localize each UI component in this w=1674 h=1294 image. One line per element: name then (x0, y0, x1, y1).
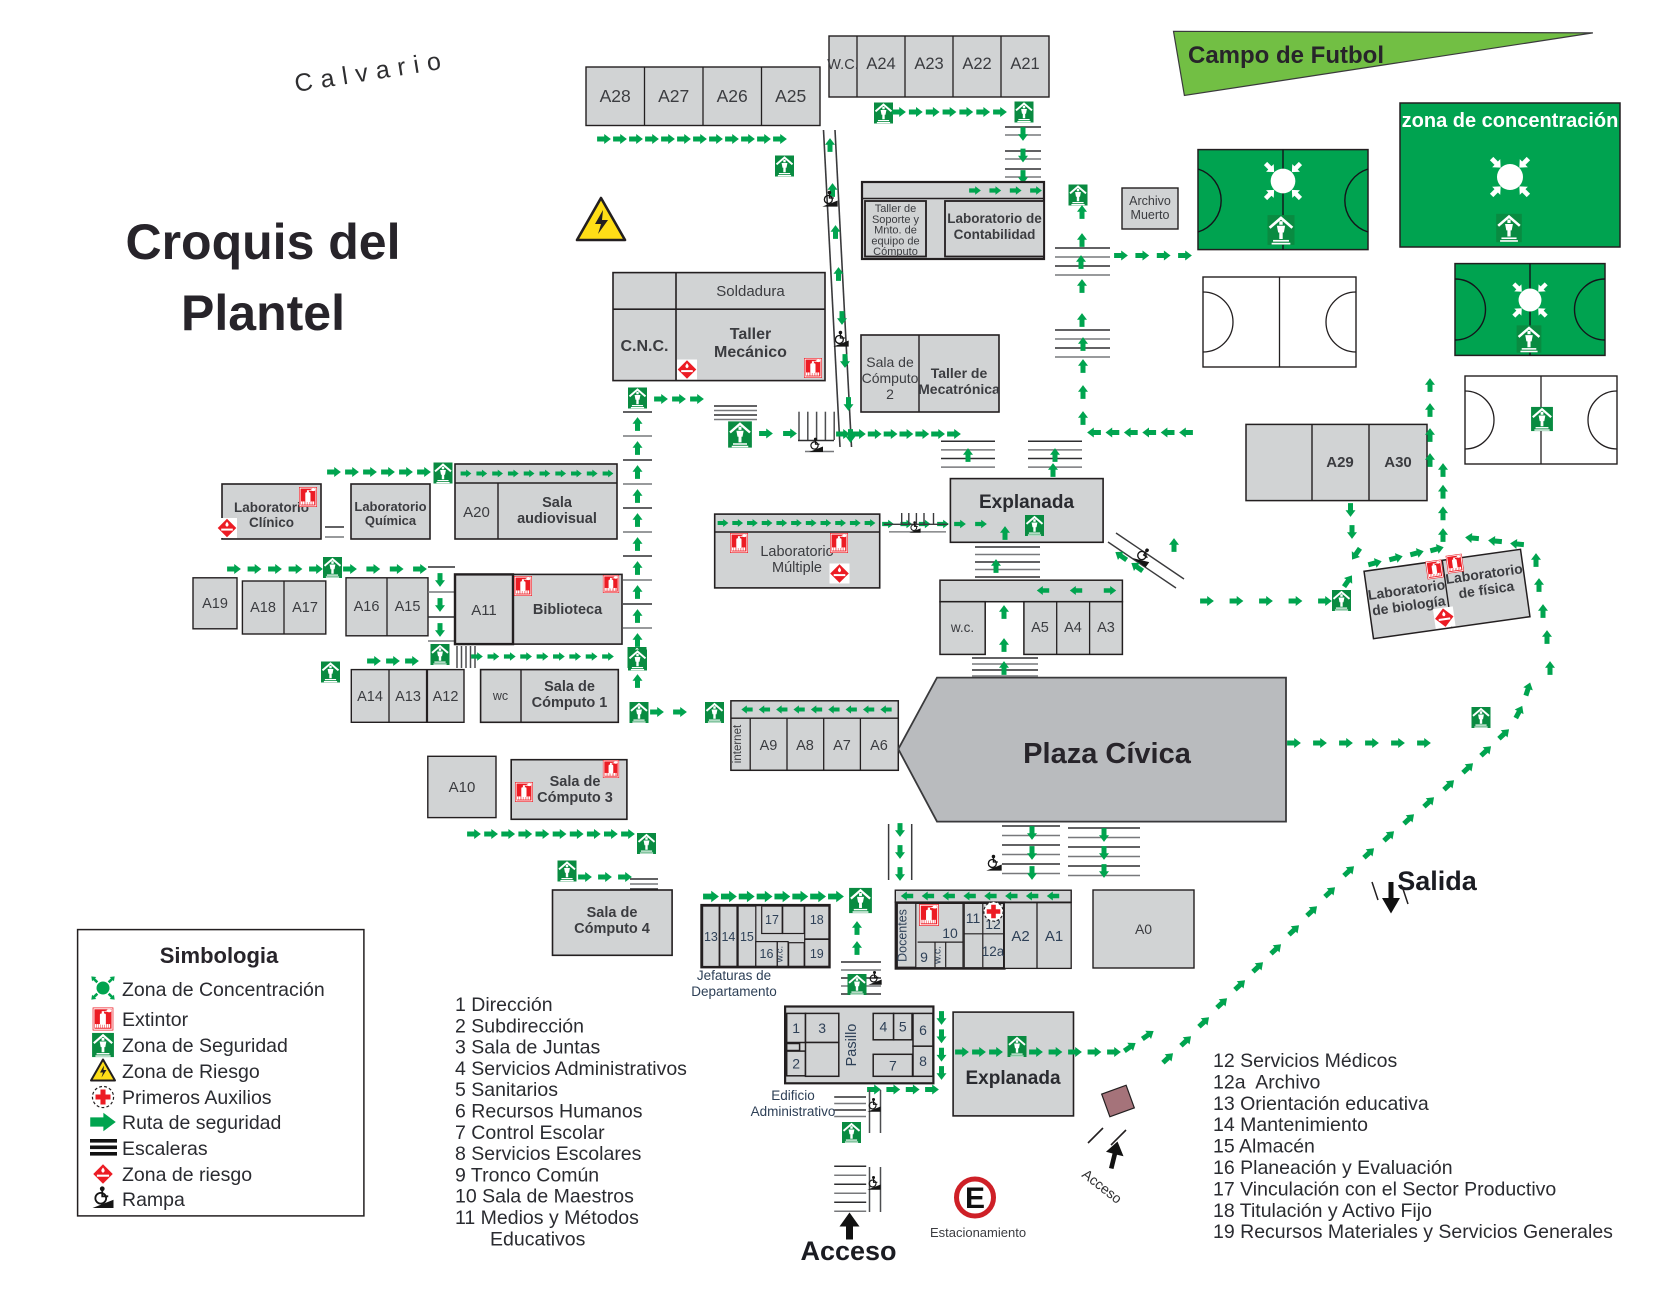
svg-text:5 Sanitarios: 5 Sanitarios (455, 1079, 558, 1101)
svg-text:13: 13 (704, 930, 718, 944)
svg-text:Docentes: Docentes (896, 909, 910, 962)
svg-text:17: 17 (765, 913, 779, 927)
svg-text:Sala de: Sala de (866, 354, 914, 370)
svg-text:Zona de riesgo: Zona de riesgo (122, 1164, 252, 1186)
svg-text:A28: A28 (600, 86, 631, 106)
svg-text:12a Archivo: 12a Archivo (1213, 1071, 1320, 1093)
svg-text:A23: A23 (914, 55, 943, 73)
svg-text:W.C.: W.C. (827, 57, 858, 73)
svg-text:w.c.: w.c. (932, 946, 944, 965)
svg-text:10: 10 (942, 925, 958, 941)
svg-text:Mecánico: Mecánico (714, 344, 787, 361)
svg-text:1 Dirección: 1 Dirección (455, 994, 553, 1016)
svg-text:Contabilidad: Contabilidad (954, 227, 1036, 242)
svg-text:Sala de: Sala de (550, 774, 601, 790)
svg-text:A27: A27 (658, 86, 689, 106)
svg-text:19 Recursos Materiales y Servi: 19 Recursos Materiales y Servicios Gener… (1213, 1221, 1613, 1243)
svg-text:Escaleras: Escaleras (122, 1138, 208, 1160)
svg-text:Plaza Cívica: Plaza Cívica (1023, 738, 1192, 770)
svg-text:12 Servicios Médicos: 12 Servicios Médicos (1213, 1050, 1397, 1072)
svg-text:Ruta de seguridad: Ruta de seguridad (122, 1112, 281, 1134)
svg-text:A22: A22 (962, 55, 991, 73)
svg-text:8 Servicios Escolares: 8 Servicios Escolares (455, 1143, 642, 1165)
svg-text:A9: A9 (760, 738, 778, 754)
svg-text:Química: Química (365, 513, 417, 528)
svg-text:Pasillo: Pasillo (844, 1024, 860, 1067)
svg-text:Cómputo: Cómputo (862, 370, 919, 386)
svg-text:3: 3 (818, 1020, 826, 1036)
svg-text:A18: A18 (250, 600, 276, 616)
svg-text:Archivo: Archivo (1129, 194, 1171, 208)
svg-text:A19: A19 (202, 596, 228, 612)
svg-text:A17: A17 (292, 600, 318, 616)
svg-text:A12: A12 (433, 689, 459, 705)
svg-text:A20: A20 (463, 504, 490, 521)
svg-text:Administrativo: Administrativo (751, 1104, 836, 1119)
svg-text:A10: A10 (449, 779, 476, 796)
svg-text:Explanada: Explanada (965, 1068, 1060, 1089)
svg-text:Laboratorio de: Laboratorio de (947, 211, 1042, 226)
svg-text:11 Medios y Métodos: 11 Medios y Métodos (455, 1207, 639, 1229)
svg-text:Mecatrónica: Mecatrónica (918, 381, 1000, 397)
svg-text:w.c.: w.c. (950, 620, 974, 635)
svg-text:Biblioteca: Biblioteca (533, 602, 603, 618)
svg-text:Laboratorio: Laboratorio (354, 499, 426, 514)
svg-text:13 Orientación educativa: 13 Orientación educativa (1213, 1093, 1429, 1115)
svg-text:12a: 12a (982, 944, 1005, 959)
svg-text:7: 7 (889, 1057, 897, 1073)
svg-text:16: 16 (760, 947, 774, 961)
svg-text:Explanada: Explanada (979, 492, 1074, 513)
svg-text:Taller de: Taller de (931, 365, 988, 381)
svg-text:zona de concentración: zona de concentración (1402, 110, 1619, 132)
svg-text:19: 19 (810, 947, 824, 961)
svg-text:A13: A13 (395, 689, 421, 705)
svg-text:Educativos: Educativos (490, 1228, 586, 1250)
svg-text:14: 14 (721, 930, 735, 944)
svg-text:Salida: Salida (1397, 866, 1478, 896)
svg-text:7 Control Escolar: 7 Control Escolar (455, 1122, 605, 1144)
svg-text:15 Almacén: 15 Almacén (1213, 1136, 1315, 1158)
svg-text:A24: A24 (866, 55, 895, 73)
svg-text:14 Mantenimiento: 14 Mantenimiento (1213, 1114, 1368, 1136)
svg-text:2: 2 (886, 386, 894, 402)
svg-text:Laboratorio: Laboratorio (760, 544, 833, 560)
svg-text:Zona de Riesgo: Zona de Riesgo (122, 1061, 260, 1083)
svg-text:4: 4 (880, 1019, 888, 1035)
svg-text:Estacionamiento: Estacionamiento (930, 1225, 1026, 1240)
svg-text:wc: wc (492, 689, 508, 703)
svg-text:Taller: Taller (730, 326, 772, 343)
svg-text:Edificio: Edificio (771, 1088, 815, 1103)
svg-text:2: 2 (792, 1055, 800, 1071)
svg-text:Muerto: Muerto (1131, 208, 1170, 222)
svg-text:4 Servicios Administrativos: 4 Servicios Administrativos (455, 1058, 687, 1080)
svg-text:1: 1 (792, 1020, 800, 1036)
svg-text:11: 11 (966, 910, 981, 926)
svg-text:A7: A7 (833, 738, 851, 754)
svg-text:internet: internet (732, 724, 744, 763)
svg-text:6: 6 (919, 1022, 927, 1038)
svg-text:Simbologia: Simbologia (160, 943, 279, 968)
svg-text:A0: A0 (1135, 921, 1152, 937)
svg-text:5: 5 (899, 1019, 907, 1035)
svg-text:Cómputo 3: Cómputo 3 (537, 790, 613, 806)
svg-text:A11: A11 (471, 602, 497, 619)
svg-text:6 Recursos Humanos: 6 Recursos Humanos (455, 1101, 643, 1123)
svg-text:A14: A14 (357, 689, 383, 705)
svg-text:A21: A21 (1010, 55, 1039, 73)
svg-text:A26: A26 (717, 86, 748, 106)
svg-text:A3: A3 (1097, 620, 1115, 636)
svg-text:17 Vinculación con el Sector P: 17 Vinculación con el Sector Productivo (1213, 1178, 1556, 1200)
svg-text:16 Planeación y Evaluación: 16 Planeación y Evaluación (1213, 1157, 1453, 1179)
svg-text:Extintor: Extintor (122, 1009, 189, 1031)
svg-text:Múltiple: Múltiple (772, 560, 822, 576)
svg-text:A4: A4 (1064, 620, 1082, 636)
svg-text:Sala de: Sala de (587, 905, 638, 921)
svg-text:A1: A1 (1045, 928, 1063, 945)
svg-text:A8: A8 (796, 738, 814, 754)
svg-text:Croquis del: Croquis del (125, 214, 400, 270)
svg-text:A25: A25 (775, 86, 806, 106)
svg-text:Zona de Seguridad: Zona de Seguridad (122, 1035, 288, 1057)
svg-text:Clínico: Clínico (249, 515, 294, 530)
svg-text:C.N.C.: C.N.C. (621, 338, 669, 355)
svg-text:Cómputo 4: Cómputo 4 (574, 921, 650, 937)
svg-text:Plantel: Plantel (181, 285, 345, 341)
svg-text:3 Sala de Juntas: 3 Sala de Juntas (455, 1037, 601, 1059)
svg-text:9: 9 (920, 949, 928, 965)
svg-text:18 Titulación y Activo Fijo: 18 Titulación y Activo Fijo (1213, 1200, 1432, 1222)
svg-text:A30: A30 (1384, 454, 1412, 471)
svg-text:Laboratorio: Laboratorio (234, 500, 309, 515)
svg-text:Zona de Concentración: Zona de Concentración (122, 979, 325, 1001)
svg-text:9 Tronco Común: 9 Tronco Común (455, 1164, 599, 1186)
svg-text:A6: A6 (870, 738, 888, 754)
svg-text:E: E (965, 1182, 985, 1215)
svg-text:audiovisual: audiovisual (517, 511, 597, 527)
svg-text:Sala: Sala (542, 495, 573, 511)
svg-text:10 Sala de Maestros: 10 Sala de Maestros (455, 1186, 634, 1208)
svg-text:Cómputo 1: Cómputo 1 (532, 695, 608, 711)
svg-text:Primeros Auxilios: Primeros Auxilios (122, 1087, 272, 1109)
svg-text:Departamento: Departamento (691, 984, 777, 999)
svg-text:Soldadura: Soldadura (716, 283, 785, 300)
svg-text:Cómputo: Cómputo (873, 246, 918, 258)
svg-text:15: 15 (740, 930, 754, 944)
svg-text:8: 8 (919, 1053, 927, 1069)
svg-text:Sala de: Sala de (544, 679, 595, 695)
svg-text:A2: A2 (1011, 928, 1029, 945)
svg-text:18: 18 (810, 913, 824, 927)
svg-text:Campo de Futbol: Campo de Futbol (1188, 42, 1384, 69)
svg-text:Jefaturas de: Jefaturas de (697, 968, 771, 983)
svg-text:2 Subdirección: 2 Subdirección (455, 1015, 584, 1037)
svg-text:A16: A16 (354, 599, 380, 615)
svg-text:Acceso: Acceso (800, 1236, 896, 1266)
svg-text:A5: A5 (1031, 620, 1049, 636)
svg-text:A15: A15 (395, 599, 421, 615)
svg-text:Rampa: Rampa (122, 1189, 185, 1211)
svg-text:w.c.: w.c. (775, 946, 786, 963)
svg-text:A29: A29 (1326, 454, 1354, 471)
